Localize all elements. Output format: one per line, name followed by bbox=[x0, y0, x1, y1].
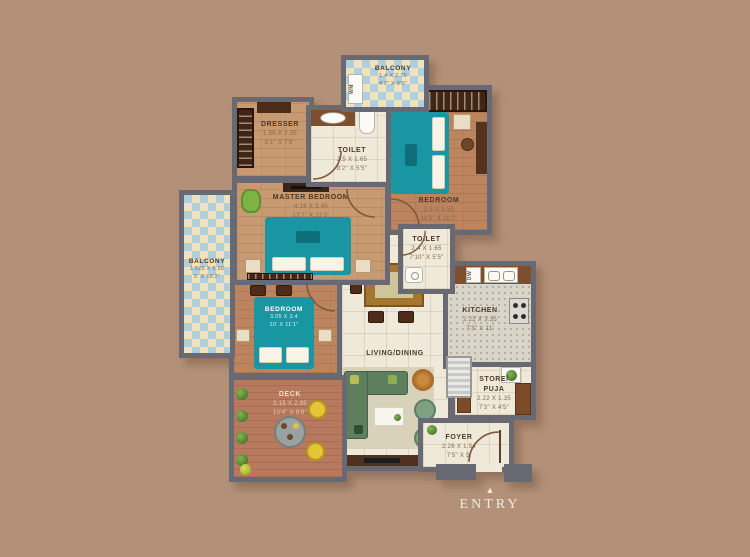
room-name: DRESSER bbox=[253, 120, 307, 130]
pillow bbox=[272, 257, 306, 271]
plant-icon bbox=[236, 388, 248, 400]
balcony-left-label: BALCONY 1.525 X 5.56 5' X 18'2" bbox=[186, 257, 228, 282]
nightstand bbox=[236, 329, 250, 342]
tv-console bbox=[346, 455, 418, 466]
room-dresser: DRESSER 1.56 X 2.35 5'1" X 7'8" bbox=[232, 97, 314, 181]
bed-runner bbox=[405, 144, 417, 166]
dining-chair bbox=[398, 311, 414, 323]
room-dim-m: 3.05 X 3.4 bbox=[256, 314, 312, 322]
vanity-counter bbox=[311, 110, 355, 126]
sofa-pillow bbox=[388, 375, 397, 384]
room-dim-ft: 5'1" X 7'8" bbox=[253, 139, 307, 148]
room-name: STORE/ PUJA bbox=[473, 375, 515, 395]
pillow bbox=[432, 117, 445, 151]
dishwasher-label: DW bbox=[467, 268, 480, 282]
door-arc bbox=[390, 198, 420, 228]
balcony-top-label: BALCONY 1.4 X 2.75 4'7" X 9'0" bbox=[362, 64, 424, 89]
bedroom-chair bbox=[276, 285, 292, 296]
stove-icon bbox=[509, 298, 529, 324]
entry-label: ENTRY bbox=[452, 497, 528, 513]
toilet-icon bbox=[359, 110, 375, 134]
burner bbox=[513, 303, 518, 308]
burner bbox=[521, 314, 526, 319]
deck-chair bbox=[308, 400, 327, 419]
sink-basin bbox=[488, 271, 500, 281]
room-name: BALCONY bbox=[186, 257, 228, 266]
entry-arrow-icon: ▲ bbox=[452, 485, 528, 495]
deck-table-item bbox=[293, 423, 299, 429]
room-dim-m: 1.525 X 5.56 bbox=[186, 266, 228, 274]
deck-table bbox=[274, 416, 306, 448]
kitchen-sink bbox=[484, 267, 518, 283]
room-dim-m: 2.22 X 3.35 bbox=[450, 316, 510, 325]
nightstand bbox=[355, 259, 371, 273]
room-dim-ft: 4'7" X 9'0" bbox=[362, 81, 424, 89]
floor-plan: LIVING/DINING DW bbox=[0, 0, 750, 557]
kitchen-label: KITCHEN 2.22 X 3.35 7'3" X 11' bbox=[450, 306, 510, 334]
sink-icon bbox=[405, 267, 423, 283]
room-name: KITCHEN bbox=[450, 306, 510, 316]
coffee-table bbox=[374, 407, 404, 426]
dining-chair bbox=[368, 311, 384, 323]
wardrobe bbox=[247, 273, 313, 280]
room-dim-ft: 7'3" X 4'5" bbox=[473, 404, 515, 413]
room-dim-ft: 7'3" X 11' bbox=[450, 325, 510, 334]
pillow bbox=[286, 347, 309, 363]
room-dim-m: 1.4 X 2.75 bbox=[362, 73, 424, 81]
room-dim-m: 2.22 X 1.35 bbox=[473, 395, 515, 404]
bed-runner bbox=[296, 231, 320, 243]
pillow bbox=[310, 257, 344, 271]
room-dim-ft: 10' X 11'1" bbox=[256, 322, 312, 330]
room-balcony-top: WM BALCONY 1.4 X 2.75 4'7" X 9'0" bbox=[341, 55, 429, 112]
burner bbox=[513, 314, 518, 319]
room-name: LIVING/DINING bbox=[350, 349, 440, 359]
double-bed bbox=[265, 217, 351, 275]
nightstand bbox=[318, 329, 332, 342]
room-name: DECK bbox=[258, 390, 322, 400]
closet-shelf bbox=[257, 102, 291, 113]
rattan-side-table bbox=[412, 369, 434, 391]
bedroom-3-label: BEDROOM 3.05 X 3.4 10' X 11'1" bbox=[256, 305, 312, 330]
washing-machine-label: WM bbox=[349, 75, 362, 103]
door-leaf bbox=[499, 430, 501, 464]
deck-chair bbox=[306, 442, 325, 461]
fridge-icon bbox=[446, 356, 472, 398]
sofa-pillow bbox=[350, 375, 359, 384]
wardrobe bbox=[427, 90, 487, 112]
room-name: BALCONY bbox=[362, 64, 424, 73]
pillow bbox=[432, 155, 445, 189]
wardrobe bbox=[237, 108, 254, 168]
room-balcony-left: BALCONY 1.525 X 5.56 5' X 18'2" bbox=[179, 190, 235, 358]
burner bbox=[521, 303, 526, 308]
sink-basin bbox=[503, 271, 515, 281]
plant-icon bbox=[240, 464, 251, 475]
room-kitchen: DW KITCHEN 2.22 X 3.35 7'3" X 11' bbox=[443, 261, 536, 369]
plant-icon bbox=[394, 414, 401, 421]
double-bed: BEDROOM 3.05 X 3.4 10' X 11'1" bbox=[254, 297, 314, 369]
double-bed bbox=[391, 112, 449, 194]
nightstand bbox=[453, 114, 471, 130]
deck-table-item bbox=[281, 423, 287, 429]
bedroom-chair bbox=[250, 285, 266, 296]
floor-plan-image: LIVING/DINING DW bbox=[0, 0, 750, 557]
plant-icon bbox=[236, 432, 248, 444]
living-dining-label: LIVING/DINING bbox=[350, 349, 440, 359]
desk-chair bbox=[461, 138, 474, 151]
sofa-pillow bbox=[354, 425, 363, 434]
tv-icon bbox=[364, 458, 400, 463]
room-name: BEDROOM bbox=[256, 305, 312, 314]
entry-opening bbox=[474, 463, 502, 472]
door-arc bbox=[400, 230, 426, 256]
dishwasher: DW bbox=[466, 267, 481, 283]
wall-stub bbox=[436, 464, 476, 480]
door-arc bbox=[306, 282, 336, 312]
wall-stub bbox=[504, 464, 532, 482]
door-arc bbox=[346, 188, 376, 218]
sink-icon bbox=[320, 112, 346, 124]
store-puja-label: STORE/ PUJA 2.22 X 1.35 7'3" X 4'5" bbox=[473, 375, 515, 413]
sink-basin bbox=[411, 272, 419, 280]
door-arc bbox=[312, 150, 342, 180]
room-dim-m: 1.56 X 2.35 bbox=[253, 130, 307, 139]
pillow bbox=[259, 347, 282, 363]
study-desk bbox=[476, 122, 487, 174]
deck-table-item bbox=[287, 434, 293, 440]
door-arc bbox=[468, 430, 500, 464]
plant-icon bbox=[236, 410, 248, 422]
washing-machine: WM bbox=[348, 74, 363, 104]
store-shelf bbox=[515, 383, 531, 415]
dresser-label: DRESSER 1.56 X 2.35 5'1" X 7'8" bbox=[253, 120, 307, 148]
room-deck: DECK 3.15 X 2.95 10'4" X 9'8" bbox=[229, 375, 347, 482]
room-dim-ft: 5' X 18'2" bbox=[186, 274, 228, 282]
nightstand bbox=[245, 259, 261, 273]
